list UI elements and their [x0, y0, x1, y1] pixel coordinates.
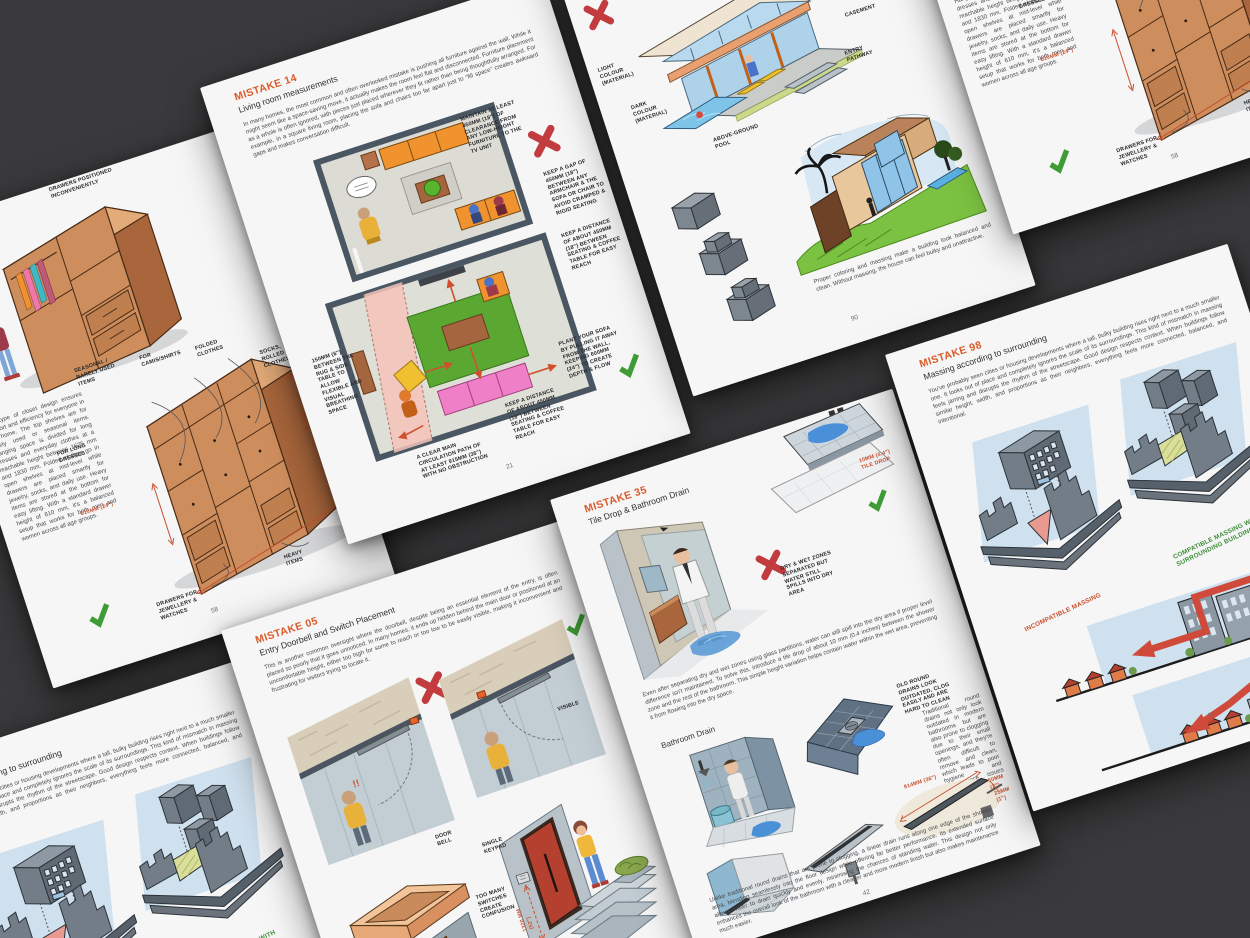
page-number: 58	[210, 606, 219, 615]
page-number: 21	[505, 462, 514, 471]
check-icon	[84, 601, 116, 630]
collage-scene: Hanging rod placed too high Drawers posi…	[0, 0, 1250, 938]
annotation-armchair-gap: Keep a gap of 450mm (18") between any ar…	[543, 155, 611, 217]
page-number: 90	[850, 314, 859, 323]
annotation-tv-clearance: Maintain at least 450mm (18") of clearan…	[460, 99, 528, 155]
tile-drop-illustration	[745, 395, 915, 545]
page-number: 42	[862, 888, 871, 897]
woman-figure	[0, 311, 20, 382]
doorbell-plan-good-illustration	[428, 614, 612, 800]
annotation-coffee-right: Keep a distance of about 450mm (18") bet…	[561, 216, 627, 272]
check-icon	[1044, 147, 1076, 176]
annotation-spill: Dry & wet zones separated but water stil…	[780, 549, 844, 598]
page-number: 58	[1170, 152, 1179, 161]
wardrobe-good-illustration	[1033, 0, 1250, 158]
cross-icon	[525, 122, 563, 160]
